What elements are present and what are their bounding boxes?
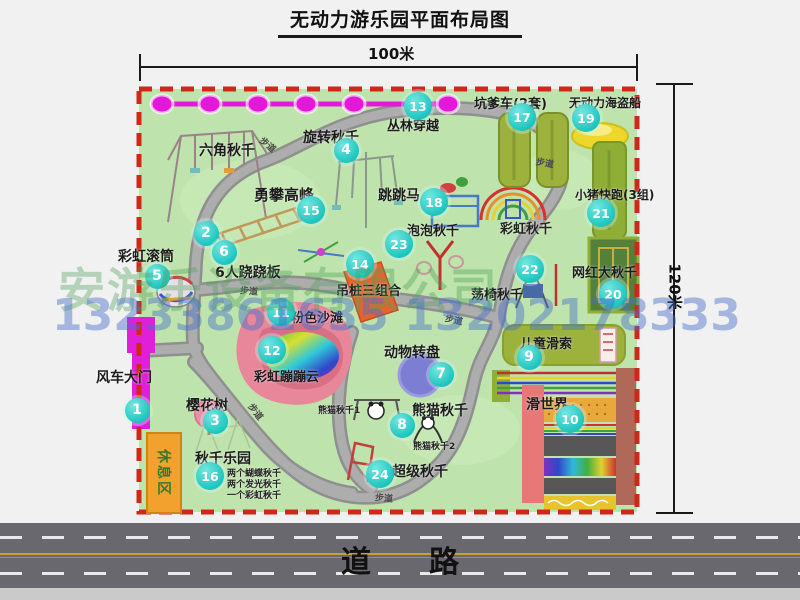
poi-label-1: 风车大门: [96, 367, 152, 387]
road: 道路: [0, 523, 800, 588]
poi-label-8: 熊猫秋千: [412, 400, 468, 420]
poi-label-20: 网红大秋千: [572, 262, 637, 281]
poi-badge-22: 22: [516, 255, 544, 283]
poi-badge-7: 7: [429, 362, 454, 387]
poi-label-2: 六角秋千: [199, 140, 255, 160]
poi-badge-10: 10: [556, 405, 584, 433]
poi-badge-17: 17: [508, 103, 536, 131]
poi-badge-4: 4: [334, 138, 359, 163]
poi-label-7: 动物转盘: [384, 342, 440, 362]
poi-badge-1: 1: [125, 398, 150, 423]
rest-area-label: 休息区: [154, 449, 174, 497]
page-title-text: 无动力游乐园平面布局图: [278, 5, 522, 38]
poi-badge-16: 16: [196, 462, 224, 490]
rest-area: 休息区: [146, 432, 182, 514]
poi-badge-9: 9: [517, 345, 542, 370]
poi-label-23: 泡泡秋千: [407, 220, 459, 239]
poi-badge-15: 15: [297, 196, 325, 224]
width-dimension-label: 100米: [368, 43, 414, 64]
poi-badge-13: 13: [404, 92, 432, 120]
poi-badge-2: 2: [194, 221, 219, 246]
page-title: 无动力游乐园平面布局图: [0, 5, 800, 38]
poi-badge-8: 8: [390, 413, 415, 438]
poi-label-24: 超级秋千: [392, 461, 448, 481]
poi-badge-24: 24: [366, 460, 394, 488]
poi-badge-18: 18: [420, 188, 448, 216]
poi-badge-3: 3: [203, 409, 228, 434]
watermark-phone: 13233861635 13202178333: [52, 290, 741, 341]
poi-badge-21: 21: [587, 199, 615, 227]
poi-label-18: 跳跳马: [378, 185, 420, 205]
trail-label-5: 步道: [374, 490, 393, 505]
map-note-1: 熊猫秋千1: [318, 403, 360, 416]
map-note-2: 熊猫秋千2: [413, 439, 455, 452]
poi-label-12: 彩虹蹦蹦云: [254, 366, 319, 385]
playground-layout-map: 无动力游乐园平面布局图 100米 120米: [0, 0, 800, 600]
map-note-0: 彩虹秋千: [500, 218, 552, 237]
poi-badge-19: 19: [572, 104, 600, 132]
road-label: 道路: [0, 537, 800, 581]
slide-world-icon: [522, 368, 636, 510]
poi-label-21: 小猪快跑(3组): [575, 186, 654, 203]
map-note-5: 一个彩虹秋千: [227, 488, 281, 501]
